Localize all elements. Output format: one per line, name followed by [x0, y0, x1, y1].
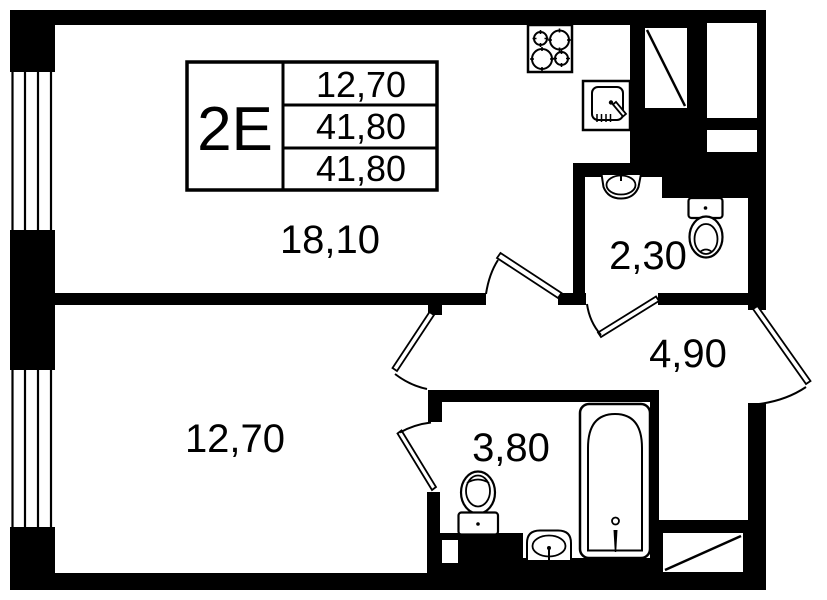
door-living	[486, 253, 562, 298]
unit-label: 2E	[197, 95, 273, 164]
bathtub-icon	[580, 404, 650, 558]
wall-bathroom-band	[520, 558, 652, 590]
wall-divider	[658, 293, 748, 305]
bath-toilet-icon	[459, 472, 499, 535]
stat-room-area: 12,70	[316, 64, 406, 105]
room-label-bedroom: 12,70	[185, 417, 285, 461]
door-leaf	[393, 312, 435, 371]
wc-basin-icon	[602, 172, 642, 199]
door-wc	[587, 297, 659, 338]
wc-toilet-icon	[689, 198, 723, 258]
door-bathroom	[398, 423, 437, 491]
door-bedroom	[393, 312, 435, 389]
floor-plan-svg: 2E 12,70 41,80 41,80 18,10 2,30 4,90 12,…	[0, 0, 827, 600]
vent-shaft-icon	[663, 533, 743, 572]
door-leaf	[398, 431, 437, 491]
wall-right-upper	[748, 153, 766, 310]
vent-shaft-icon	[645, 28, 687, 108]
window-icon	[10, 72, 55, 230]
door-entrance	[753, 306, 811, 404]
room-label-living: 18,10	[280, 218, 380, 262]
title-block: 2E 12,70 41,80 41,80	[187, 62, 437, 190]
door-arc	[587, 304, 601, 335]
stat-living-area: 41,80	[316, 106, 406, 147]
kitchen-sink-icon	[583, 81, 630, 130]
wall-niche	[442, 540, 458, 563]
wall-left-mid	[10, 230, 55, 370]
stat-total-area: 41,80	[316, 148, 406, 189]
door-arc	[395, 374, 427, 389]
wall-wc-west	[573, 163, 585, 305]
room-label-hallway: 4,90	[649, 332, 727, 376]
stove-icon	[528, 25, 572, 72]
bath-basin-icon	[527, 531, 571, 563]
door-arc	[400, 423, 431, 433]
door-leaf	[598, 297, 659, 338]
door-arc	[759, 387, 806, 404]
room-label-bathroom: 3,80	[472, 426, 550, 470]
shaft-niche	[707, 23, 757, 118]
wall-divider	[442, 293, 486, 305]
door-arc	[486, 260, 498, 294]
floor-plan-page: 2E 12,70 41,80 41,80 18,10 2,30 4,90 12,…	[0, 0, 827, 600]
wall-bathroom-top	[432, 390, 658, 402]
shaft-niche	[707, 130, 757, 152]
door-leaf	[753, 306, 811, 384]
room-label-wc: 2,30	[609, 234, 687, 278]
wall-left-top	[10, 10, 55, 72]
door-leaf	[497, 253, 562, 298]
wall-divider	[55, 293, 428, 305]
window-icon	[10, 370, 55, 527]
